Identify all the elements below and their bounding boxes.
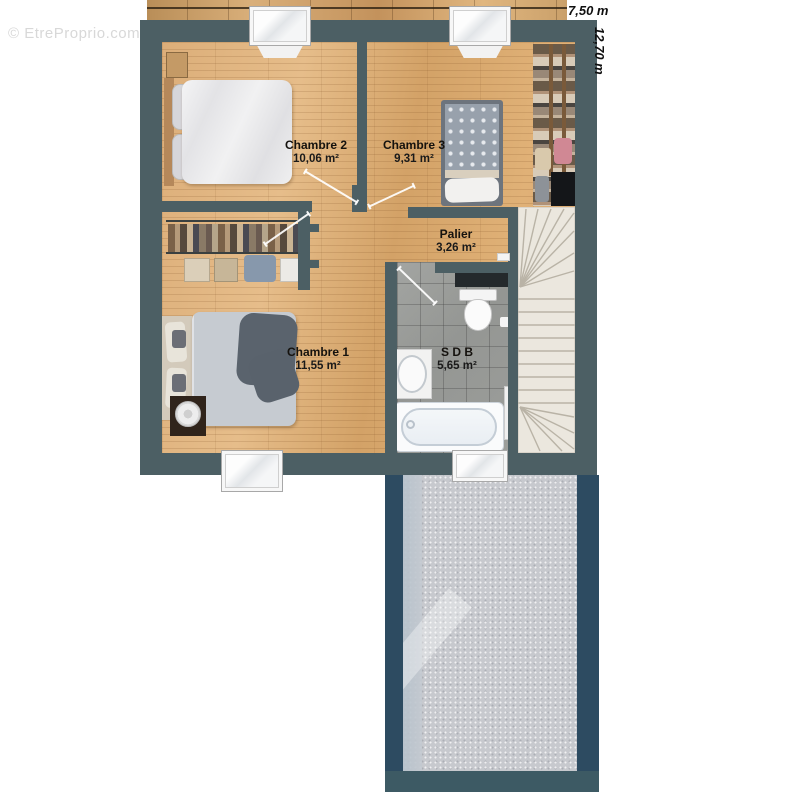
room-name: Chambre 2	[285, 138, 347, 152]
window-pane	[253, 10, 307, 42]
window-chambre2	[249, 6, 311, 46]
terrace-wall-left	[385, 475, 403, 792]
wall-right	[575, 20, 597, 475]
bed-duvet-chambre3	[445, 104, 499, 178]
room-label-palier: Palier 3,26 m²	[436, 227, 476, 255]
toilet-icon	[464, 299, 492, 331]
wall-closet-nub	[309, 260, 319, 268]
bathtub-basin	[401, 408, 497, 446]
stair-door-leaf	[497, 253, 510, 261]
bed-duvet-chambre2	[182, 80, 292, 184]
pillow-accent	[172, 330, 186, 348]
room-name: Chambre 3	[383, 138, 445, 152]
wall-chambre2-chambre3	[357, 42, 367, 189]
wall-stair-left	[508, 207, 518, 453]
pillow-accent	[172, 374, 186, 392]
clothes-item-beige	[535, 148, 551, 170]
wall-left	[140, 20, 162, 475]
room-label-chambre1: Chambre 1 11,55 m²	[287, 345, 349, 373]
window-chambre1	[221, 450, 283, 492]
pillow-icon	[445, 177, 500, 203]
storage-box-beige	[184, 258, 210, 282]
room-name: S D B	[437, 345, 477, 359]
wall-sdb-left	[385, 262, 397, 453]
wall-closet-stub	[298, 210, 310, 290]
terrace-wall-right	[577, 475, 599, 792]
floorplan-canvas: Chambre 2 10,06 m² Chambre 3 9,31 m² Pal…	[0, 0, 800, 800]
closet-shelf	[166, 252, 302, 254]
room-label-chambre3: Chambre 3 9,31 m²	[383, 138, 445, 166]
room-area: 11,55 m²	[287, 359, 349, 373]
room-area: 5,65 m²	[437, 359, 477, 373]
room-label-chambre2: Chambre 2 10,06 m²	[285, 138, 347, 166]
window-chambre3	[449, 6, 511, 46]
room-label-sdb: S D B 5,65 m²	[437, 345, 477, 373]
room-area: 9,31 m²	[383, 152, 445, 166]
watermark: © EtreProprio.com	[8, 25, 140, 42]
clothes-item-gray	[535, 176, 549, 202]
wall-below-chambre3	[408, 207, 508, 218]
window-sdb	[452, 450, 508, 482]
wall-bottom	[140, 453, 597, 475]
folded-clothes-blue	[244, 255, 276, 282]
dimension-width-label: 7,50 m	[568, 3, 608, 18]
hanging-clothes	[168, 224, 300, 252]
bathroom-shelf-dark	[455, 272, 511, 287]
room-name: Palier	[436, 227, 476, 241]
room-area: 3,26 m²	[436, 241, 476, 255]
wall-closet-nub	[309, 224, 319, 232]
window-pane	[453, 10, 507, 42]
wall-stub	[352, 185, 367, 212]
nightstand-icon	[166, 52, 188, 78]
room-name: Chambre 1	[287, 345, 349, 359]
window-pane	[225, 454, 279, 488]
dimension-height-label: 12,70 m	[592, 27, 607, 75]
staircase	[518, 207, 575, 453]
clothes-item-pink	[554, 138, 572, 164]
closet-rail	[166, 220, 302, 222]
bathtub-drain	[406, 420, 415, 429]
wall-top	[140, 20, 597, 42]
wall-sdb-top	[435, 262, 508, 273]
sink-basin	[397, 355, 427, 393]
cabinet-dark	[551, 172, 575, 206]
wall-below-chambre2	[162, 201, 312, 212]
room-area: 10,06 m²	[285, 152, 347, 166]
window-pane	[456, 454, 504, 478]
storage-box-tan	[214, 258, 238, 282]
terrace-wall-bottom	[385, 771, 599, 792]
stool-icon	[175, 401, 201, 427]
